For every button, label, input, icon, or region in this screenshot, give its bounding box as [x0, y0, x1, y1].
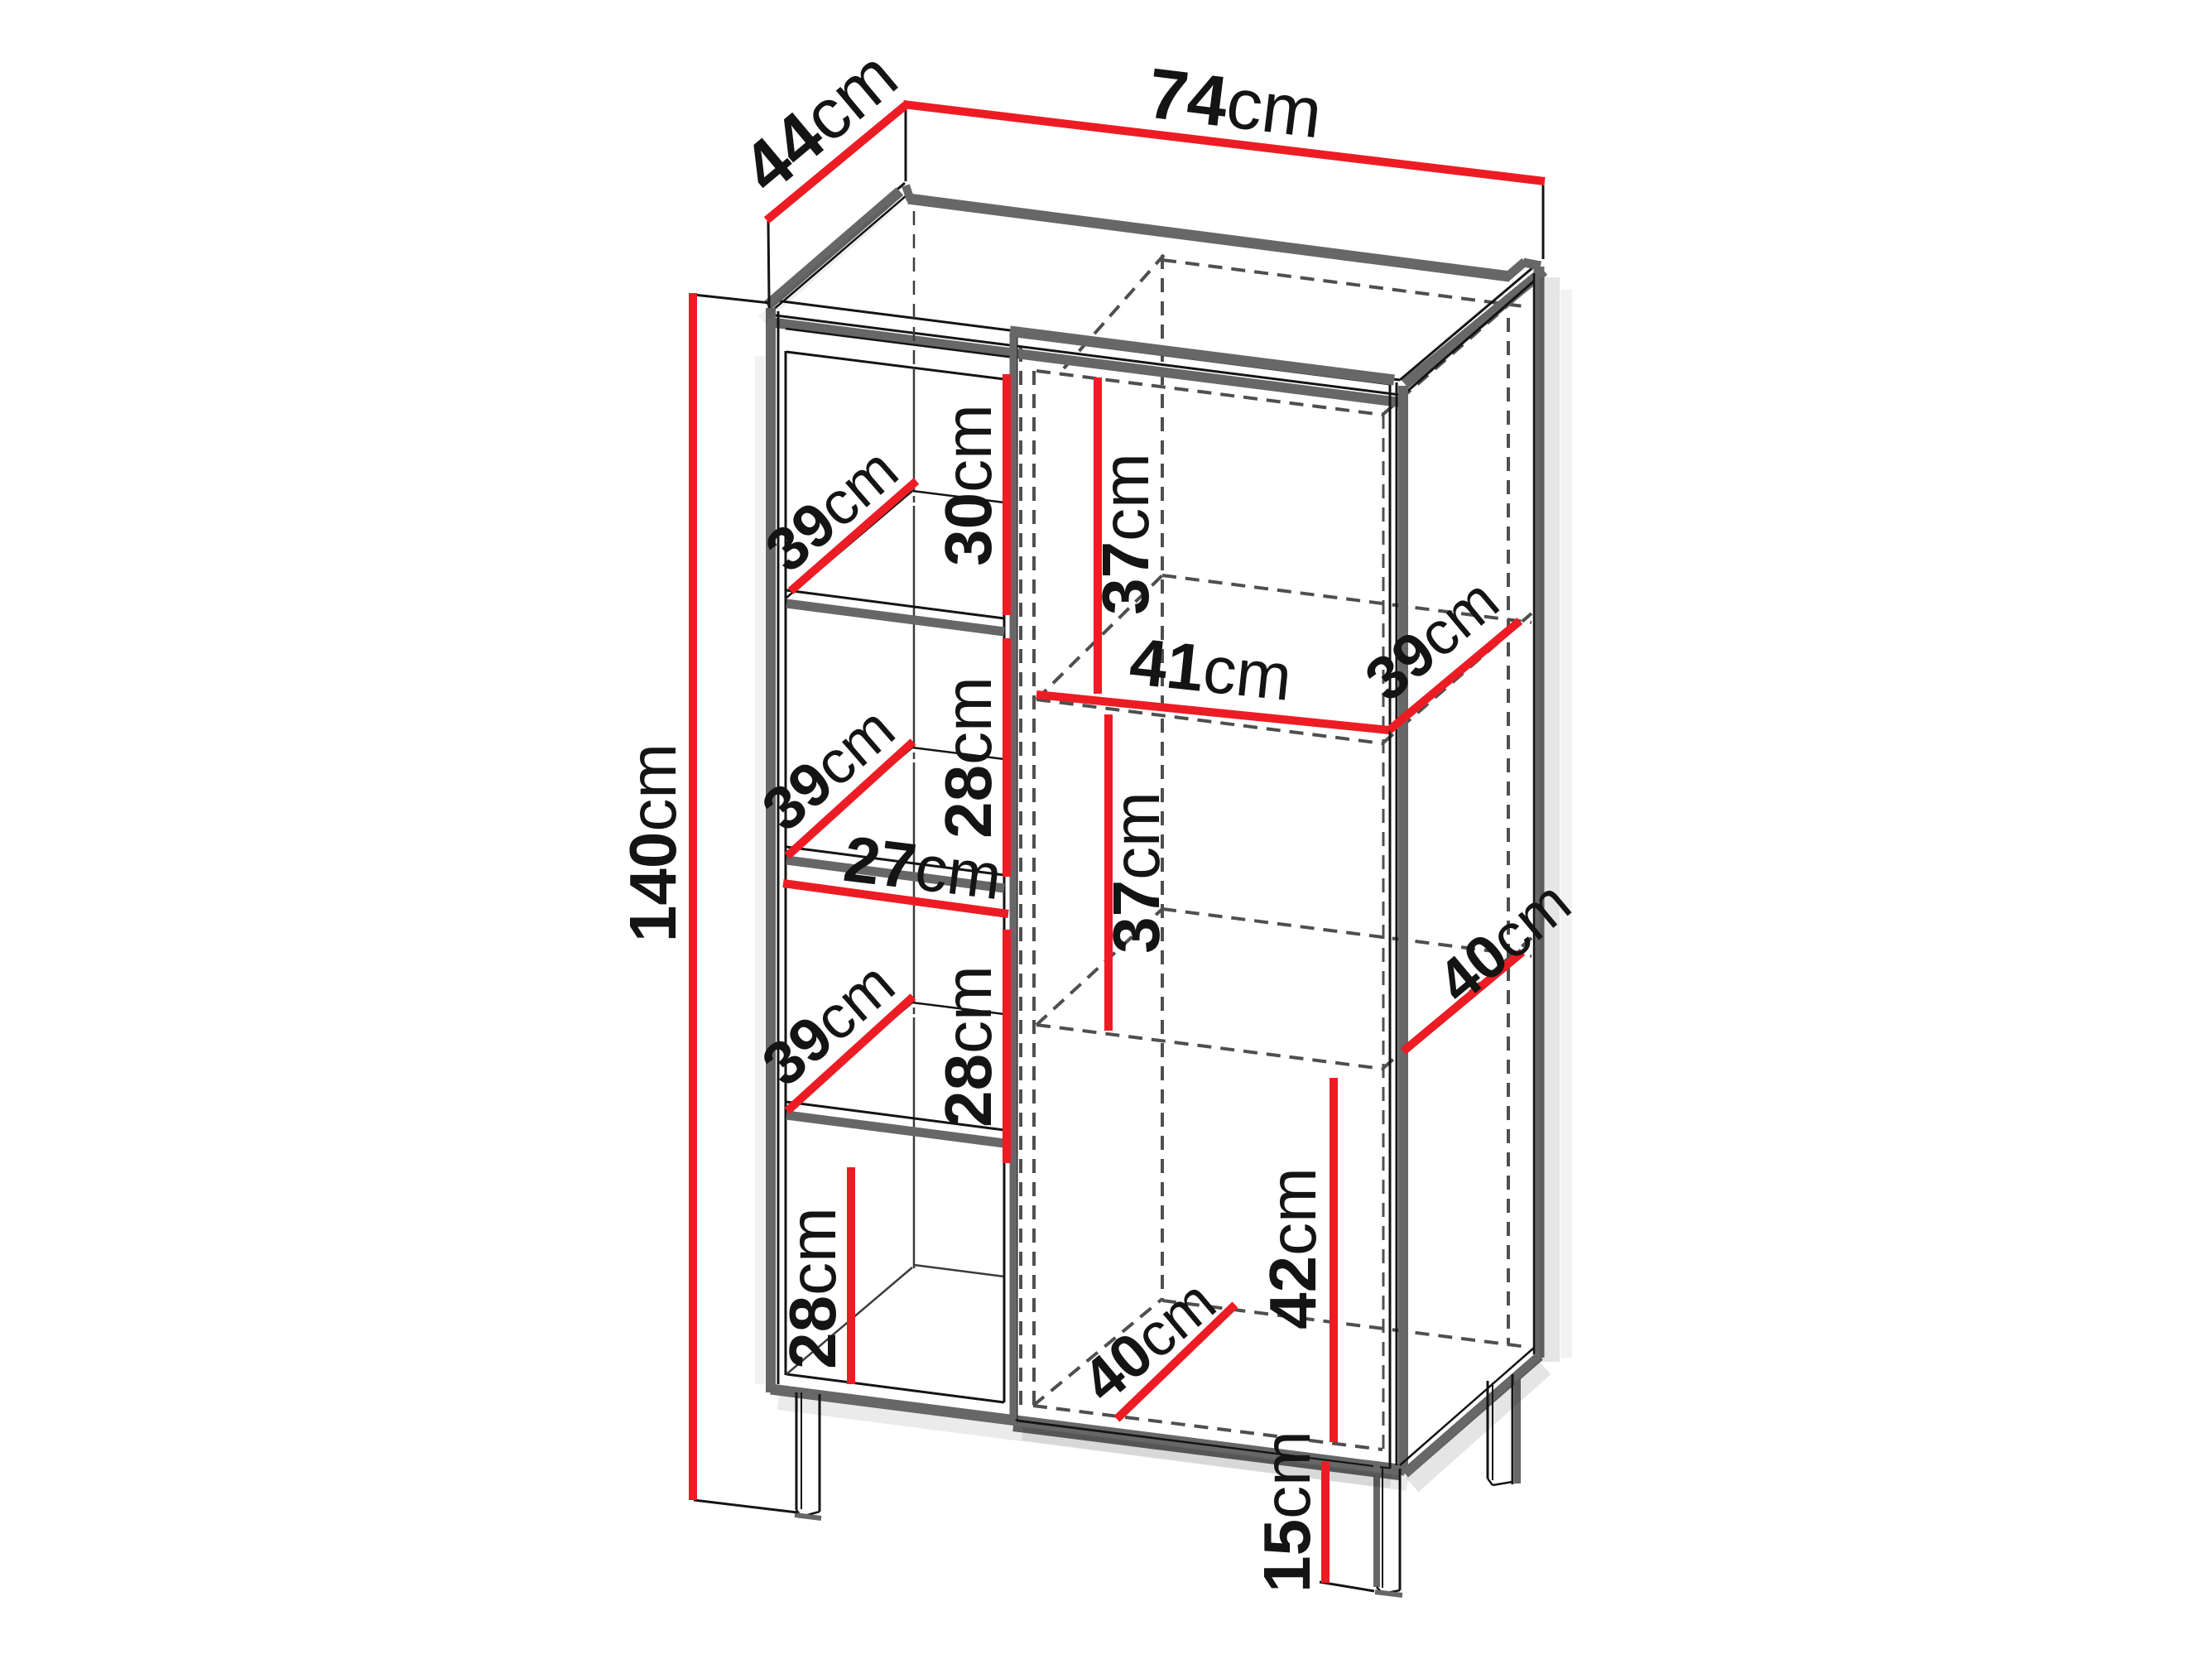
svg-text:28cm: 28cm [931, 676, 1005, 839]
svg-text:37cm: 37cm [1089, 453, 1162, 615]
svg-text:28cm: 28cm [776, 1207, 849, 1369]
svg-text:15cm: 15cm [1250, 1431, 1324, 1593]
svg-text:37cm: 37cm [1099, 791, 1173, 954]
svg-text:140cm: 140cm [616, 743, 690, 942]
svg-text:42cm: 42cm [1256, 1167, 1330, 1330]
svg-text:30cm: 30cm [931, 404, 1005, 566]
svg-text:28cm: 28cm [931, 965, 1005, 1128]
